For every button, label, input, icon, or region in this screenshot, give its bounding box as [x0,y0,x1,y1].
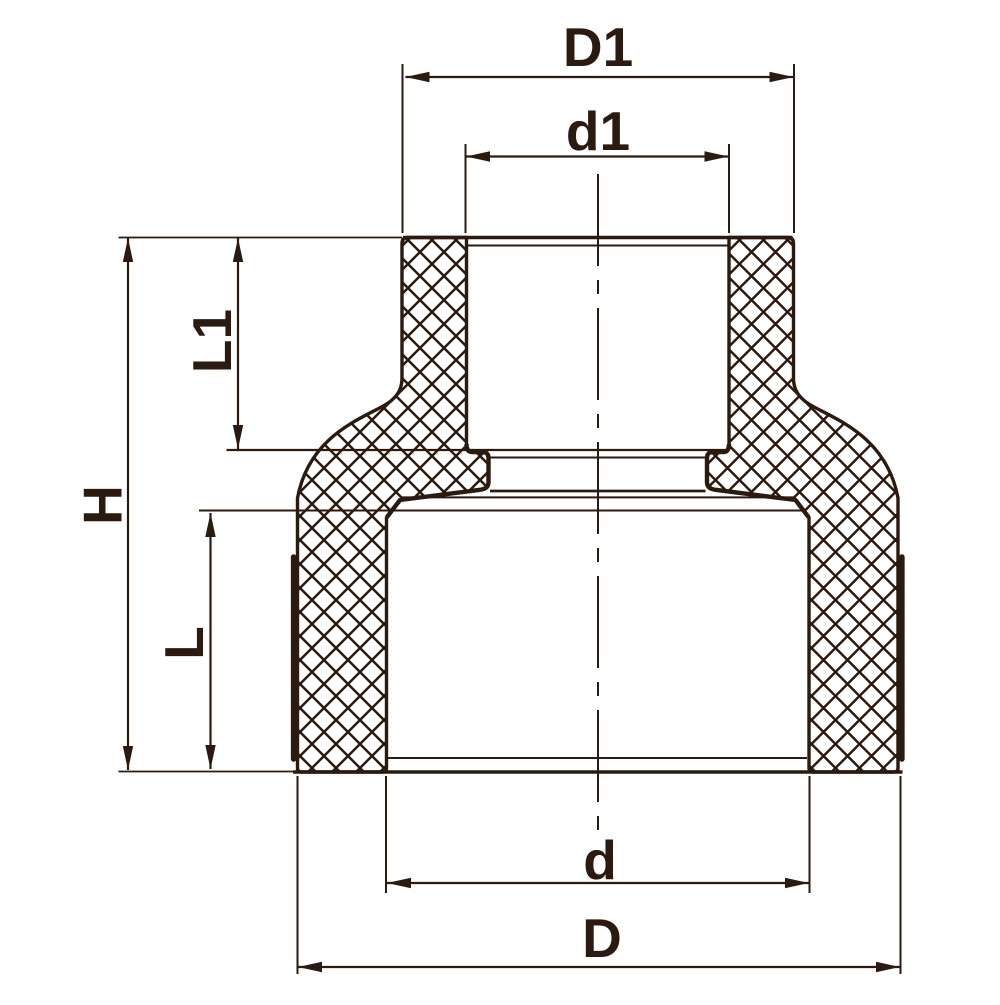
svg-text:D1: D1 [563,16,633,78]
svg-text:L1: L1 [181,309,243,373]
svg-text:d: d [583,829,617,891]
svg-text:H: H [72,485,134,525]
svg-text:d1: d1 [566,100,630,162]
svg-text:D: D [582,907,622,969]
svg-text:L: L [153,626,215,660]
